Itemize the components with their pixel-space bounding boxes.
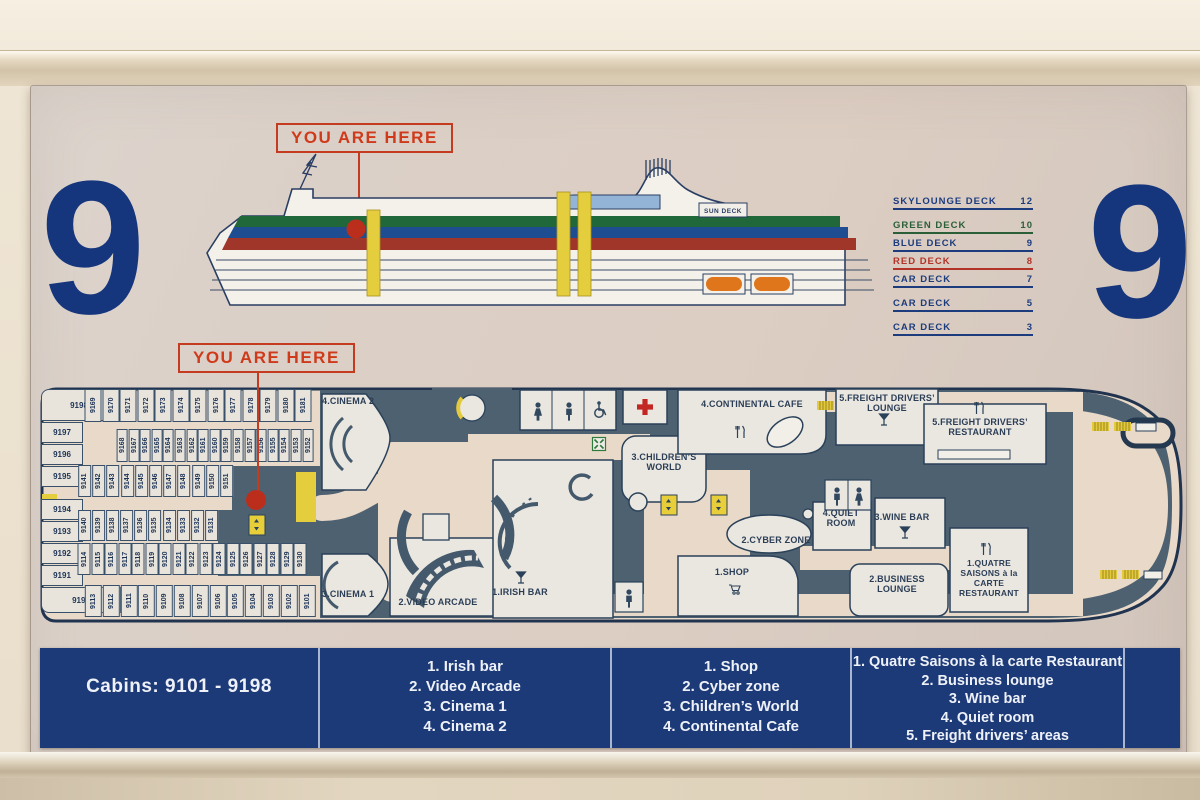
deck-legend: SKYLOUNGE DECK 12 GREEN DECK10BLUE DECK9…	[893, 196, 1033, 336]
label-wine-bar: 3.WINE BAR	[870, 512, 934, 522]
cabin-cell: 9104	[245, 585, 262, 617]
cabin-cell: 9179	[260, 389, 277, 422]
cabin-cell: 9152	[303, 429, 314, 462]
deck-number-right: 9	[1080, 182, 1200, 322]
cabin-cell: 9126	[240, 543, 253, 575]
deck-legend-rows: GREEN DECK10BLUE DECK9RED DECK8CAR DECK7…	[893, 220, 1033, 336]
cabin-cell: 9180	[278, 389, 295, 422]
cabin-cell: 9144	[121, 465, 134, 497]
legend-line: 4. Cinema 2	[320, 717, 610, 737]
cabin-cell: 9102	[281, 585, 298, 617]
cabin-cell: 9109	[156, 585, 173, 617]
cabin-cell: 9154	[279, 429, 290, 462]
cabin-cell: 9124	[213, 543, 226, 575]
cabin-cell: 9162	[187, 429, 198, 462]
cabin-cell: 9175	[190, 389, 207, 422]
label-quiet-room: 4.QUIET ROOM	[812, 508, 870, 528]
cabin-cell: 9158	[233, 429, 244, 462]
deck-legend-row: BLUE DECK9	[893, 238, 1033, 252]
cabin-cell: 9192	[41, 543, 83, 564]
sign-tray-rail	[0, 752, 1200, 778]
legend-line: 2. Cyber zone	[612, 677, 850, 697]
cabin-cell: 9120	[159, 543, 172, 575]
legend-panel-cabins: Cabins: 9101 - 9198	[40, 648, 318, 748]
cyber-zone-room	[727, 515, 811, 553]
cabin-cell: 9110	[138, 585, 155, 617]
cabin-cell: 9169	[85, 389, 102, 422]
cabin-cell: 9163	[175, 429, 186, 462]
cabin-cell: 9195	[41, 466, 83, 487]
legend-line: 4. Quiet room	[852, 709, 1123, 728]
label-freight-restaurant: 5.FREIGHT DRIVERS’ RESTAURANT	[924, 417, 1036, 437]
elevator-column	[367, 210, 380, 296]
blue-deck-stripe	[228, 227, 848, 238]
cabin-cell: 9113	[85, 585, 102, 617]
cabin-cell: 9148	[177, 465, 190, 497]
label-quatre-saisons: 1.QUATRE SAISONS à la CARTE RESTAURANT	[955, 558, 1023, 598]
deck-legend-row: CAR DECK5	[893, 298, 1033, 312]
cabin-cell: 9136	[134, 510, 147, 541]
you-are-here-dot-plan	[246, 490, 266, 510]
label-cinema2: 4.CINEMA 2	[322, 396, 394, 406]
cabin-cell: 9174	[173, 389, 190, 422]
stairs-icon	[817, 401, 834, 410]
cabin-cell: 9159	[221, 429, 232, 462]
skylounge-deck	[562, 195, 660, 209]
legend-panel-lounges: 1. Quatre Saisons à la carte Restaurant2…	[850, 648, 1123, 748]
wall-bottom	[0, 778, 1200, 800]
cabin-cell: 9164	[163, 429, 174, 462]
cabin-cell: 9147	[163, 465, 176, 497]
cabin-cell: 9145	[135, 465, 148, 497]
deck9-sign-photo: { "deck_number": "9", "you_are_here_labe…	[0, 0, 1200, 800]
cabin-cell: 9141	[78, 465, 91, 497]
label-video-arcade: 2.VIDEO ARCADE	[382, 597, 494, 607]
cabin-cell: 9103	[263, 585, 280, 617]
deck9-floor-plan: 919891979196919591949193919291919190 916…	[38, 386, 1185, 624]
red-deck-stripe	[222, 238, 856, 250]
cabin-cell: 9167	[129, 429, 140, 462]
cabin-cell: 9140	[78, 510, 91, 541]
deck-legend-row: GREEN DECK10	[893, 220, 1033, 234]
elevator-icon	[711, 495, 727, 515]
cabin-cell: 9139	[92, 510, 105, 541]
lifeboat-orange	[754, 277, 790, 291]
cabin-cell: 9130	[294, 543, 307, 575]
cabin-cell: 9176	[208, 389, 225, 422]
ship-side-profile: SUN DECK	[200, 148, 880, 313]
cabin-cell: 9121	[173, 543, 186, 575]
cabin-cell: 9131	[205, 510, 218, 541]
wall-top-rail	[0, 50, 1200, 86]
legend-line: 2. Business lounge	[852, 672, 1123, 691]
cabin-cell: 9197	[41, 422, 83, 443]
cabin-cell: 9173	[155, 389, 172, 422]
legend-panel-services: 1. Shop2. Cyber zone3. Children’s World4…	[610, 648, 850, 748]
cabin-row-c: 9141914291439144914591469147914891499150…	[78, 465, 233, 497]
deck-legend-row: RED DECK8	[893, 256, 1033, 270]
cabin-cell: 9112	[103, 585, 120, 617]
you-are-here-pointer-line-plan	[257, 371, 259, 492]
stairs-icon	[1092, 422, 1109, 431]
you-are-here-label-plan: YOU ARE HERE	[178, 343, 355, 373]
lifeboat-orange	[706, 277, 742, 291]
assembly-point-icon	[593, 438, 606, 451]
cabin-cell: 9127	[254, 543, 267, 575]
deck-legend-header-number: 12	[1020, 196, 1033, 207]
label-freight-lounge: 5.FREIGHT DRIVERS’ LOUNGE	[838, 393, 936, 413]
childrens-world-knob	[629, 493, 647, 511]
wine-bar-room	[875, 498, 945, 548]
cabin-cell: 9146	[149, 465, 162, 497]
cabin-cell: 9123	[200, 543, 213, 575]
cabin-cell: 9106	[210, 585, 227, 617]
stairs-icon	[1114, 422, 1131, 431]
cabin-cell: 9150	[206, 465, 219, 497]
cabins-range-label: Cabins: 9101 - 9198	[40, 676, 318, 698]
legend-line: 1. Quatre Saisons à la carte Restaurant	[852, 653, 1123, 672]
cabin-cell: 9125	[227, 543, 240, 575]
deck-legend-row: CAR DECK3	[893, 322, 1033, 336]
label-continental-cafe: 4.CONTINENTAL CAFE	[700, 399, 804, 409]
deck-legend-row: CAR DECK7	[893, 274, 1033, 288]
legend-line: 3. Wine bar	[852, 690, 1123, 709]
stairs-icon	[1100, 570, 1117, 579]
cabin-cell: 9160	[210, 429, 221, 462]
cabin-cell: 9142	[92, 465, 105, 497]
elevator-icon	[249, 515, 265, 535]
cabin-cell: 9137	[120, 510, 133, 541]
cabin-cell: 9107	[192, 585, 209, 617]
cabin-cell: 9181	[295, 389, 312, 422]
cabin-cell: 9196	[41, 444, 83, 465]
legend-panel-empty	[1123, 648, 1180, 748]
cabin-cell: 9116	[105, 543, 118, 575]
cabin-cell: 9149	[192, 465, 205, 497]
cabin-cell: 9114	[78, 543, 91, 575]
cabin-cell: 9135	[148, 510, 161, 541]
label-cyber-zone: 2.CYBER ZONE	[732, 535, 820, 545]
bow-locker	[1144, 571, 1162, 579]
cabin-cell: 9122	[186, 543, 199, 575]
legend-line: 5. Freight drivers’ areas	[852, 727, 1123, 746]
cabin-cell: 9108	[174, 585, 191, 617]
cabin-cell: 9193	[41, 521, 83, 542]
cabin-row-a: 9169917091719172917391749175917691779178…	[85, 389, 312, 422]
legend-bar: Cabins: 9101 - 9198 1. Irish bar2. Video…	[40, 648, 1180, 748]
cabin-cell: 9105	[227, 585, 244, 617]
cabin-cell: 9166	[140, 429, 151, 462]
cabin-cell: 9168	[117, 429, 128, 462]
cabin-cell: 9171	[120, 389, 137, 422]
cabin-cell: 9111	[121, 585, 138, 617]
cinema1-room	[322, 554, 388, 616]
cabin-cell: 9143	[106, 465, 119, 497]
legend-panel-entertainment: 1. Irish bar2. Video Arcade3. Cinema 14.…	[318, 648, 610, 748]
legend-line: 1. Irish bar	[320, 657, 610, 677]
deck-legend-header: SKYLOUNGE DECK 12	[893, 196, 1033, 210]
deck-number-left: 9	[33, 178, 153, 318]
cabin-row-e: 9114911591169117911891199120912191229123…	[78, 543, 307, 575]
cabin-cell: 9132	[191, 510, 204, 541]
cabin-cell: 9118	[132, 543, 145, 575]
cabin-cell: 9129	[281, 543, 294, 575]
cabin-cell: 9177	[225, 389, 242, 422]
buffet-counter	[938, 450, 1010, 459]
stairs-icon	[1122, 570, 1139, 579]
cabin-cell: 9161	[198, 429, 209, 462]
stairs-area	[296, 472, 316, 522]
legend-line: 4. Continental Cafe	[612, 717, 850, 737]
label-business-lounge: 2.BUSINESS LOUNGE	[852, 574, 942, 594]
cabin-cell: 9128	[267, 543, 280, 575]
cabin-cell: 9153	[291, 429, 302, 462]
deck-legend-header-label: SKYLOUNGE DECK	[893, 196, 997, 207]
label-childrens-world: 3.CHILDREN’S WORLD	[620, 452, 708, 472]
cabin-cell: 9117	[119, 543, 132, 575]
atrium-kiosk	[423, 514, 449, 540]
cabin-row-d: 9140913991389137913691359134913391329131	[78, 510, 218, 541]
cabin-cell: 9151	[220, 465, 233, 497]
cabin-row-b: 9168916791669165916491639162916191609159…	[117, 429, 313, 462]
cabin-column-left: 919891979196919591949193919291919190	[41, 389, 121, 613]
cabin-cell: 9134	[163, 510, 176, 541]
cabin-cell: 9133	[177, 510, 190, 541]
legend-line: 1. Shop	[612, 657, 850, 677]
legend-line: 3. Children’s World	[612, 697, 850, 717]
legend-line: 3. Cinema 1	[320, 697, 610, 717]
elevator-icon	[661, 495, 677, 515]
label-irish-bar: 1.IRISH BAR	[470, 587, 570, 597]
cabin-cell: 9170	[103, 389, 120, 422]
bow-mast	[300, 154, 317, 189]
cabin-row-f: 9113911291119110910991089107910691059104…	[85, 585, 315, 617]
legend-line: 2. Video Arcade	[320, 677, 610, 697]
bow-locker	[1136, 423, 1156, 431]
cabin-cell: 9191	[41, 565, 83, 586]
elevator-column	[578, 192, 591, 296]
cabin-cell: 9165	[152, 429, 163, 462]
cabin-cell: 9194	[41, 499, 83, 520]
elevator-column	[557, 192, 570, 296]
cabin-cell: 9119	[146, 543, 159, 575]
green-deck-stripe	[234, 216, 840, 227]
cabin-cell: 9138	[106, 510, 119, 541]
cabin-cell: 9157	[245, 429, 256, 462]
label-shop: 1.SHOP	[708, 567, 756, 577]
cabin-cell: 9172	[138, 389, 155, 422]
cabin-cell: 9101	[299, 585, 316, 617]
cabin-cell: 9155	[268, 429, 279, 462]
cabin-cell: 9115	[92, 543, 105, 575]
you-are-here-dot-profile	[347, 220, 366, 239]
sun-deck-label: SUN DECK	[704, 208, 742, 215]
